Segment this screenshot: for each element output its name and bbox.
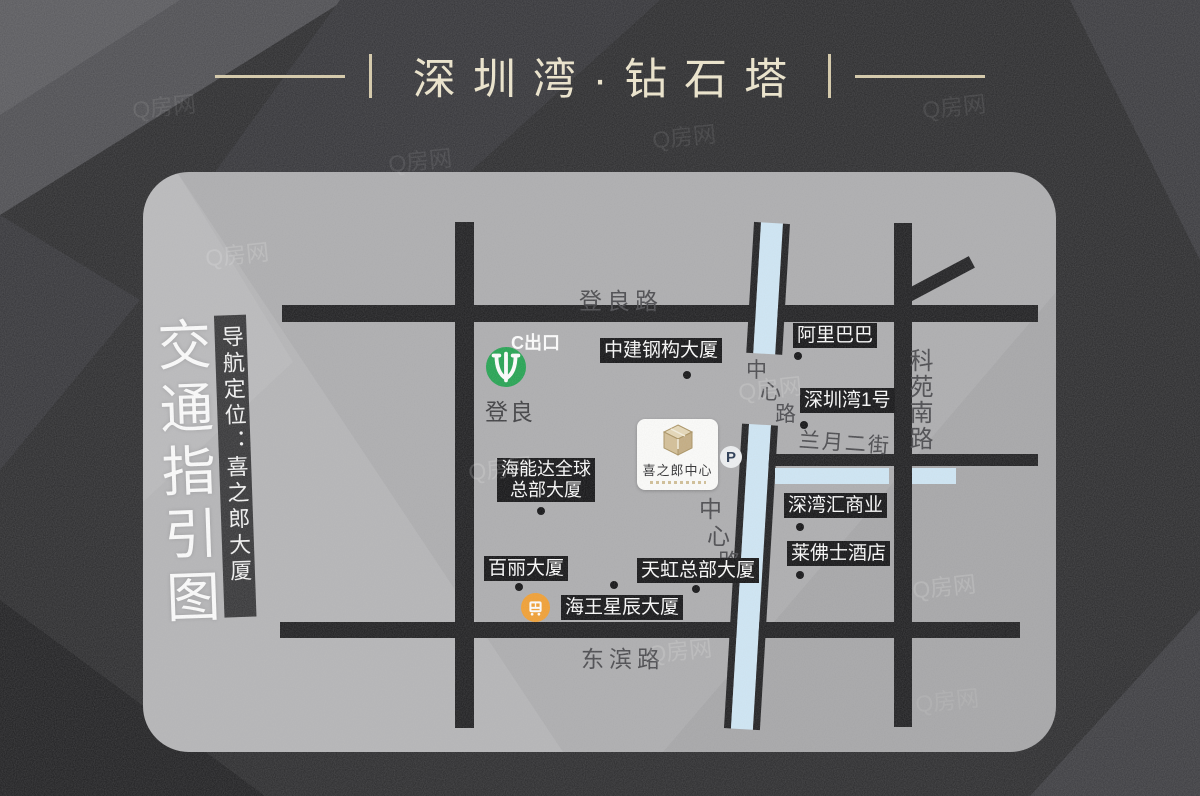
page-title: 深圳湾·钻石塔 — [396, 45, 804, 107]
map-sub-title: 导航定位：喜之郎大厦 — [214, 315, 257, 618]
title-left-bar — [369, 54, 372, 98]
landmark-laifushi: 莱佛士酒店 — [787, 541, 890, 566]
parking-icon: P — [720, 446, 742, 468]
landmark-haiwang: 海王星辰大厦 — [561, 595, 683, 620]
road-label-lanyue: 兰月二街 — [798, 424, 892, 460]
landmark-hainengda: 海能达全球 总部大厦 — [497, 458, 595, 502]
landmark-tianhong: 天虹总部大厦 — [637, 558, 759, 583]
left-title-block: 交通指引图 导航定位：喜之郎大厦 — [151, 315, 257, 633]
gold-cube-logo-icon — [658, 423, 698, 459]
dot-haiwang — [610, 581, 618, 589]
project-card: 喜之郎中心 — [637, 419, 718, 490]
road-label-keyuan-south: 科苑南路 — [901, 348, 936, 452]
watermark: Q房网 — [650, 115, 717, 155]
landmark-shenzhenwan1: 深圳湾1号 — [800, 388, 895, 413]
road-label-dongbin: 东滨路 — [581, 640, 665, 674]
title-right-bar — [828, 54, 831, 98]
dot-alibaba — [794, 352, 802, 360]
dot-zhongjian — [683, 371, 691, 379]
road-label-center-north: 中 心 路 — [746, 354, 806, 424]
dot-baili — [515, 583, 523, 591]
title-left-line — [215, 75, 345, 78]
poster-header: 深圳湾·钻石塔 — [0, 46, 1200, 106]
dot-shenzhenwan1 — [800, 421, 808, 429]
project-name: 喜之郎中心 — [642, 460, 712, 479]
dot-laifushi — [796, 571, 804, 579]
landmark-zhongjian: 中建钢构大厦 — [600, 338, 722, 363]
landmark-alibaba: 阿里巴巴 — [793, 323, 877, 348]
bus-icon — [521, 593, 550, 622]
road-center-north-segment — [746, 222, 790, 355]
landmark-shenwanhui: 深湾汇商业 — [784, 493, 887, 518]
dot-hainengda — [537, 507, 545, 515]
road-lanyue — [757, 454, 1038, 466]
map-card: 登良路 东滨路 兰月二街 科苑南路 中 心 路 中 心 路 C出口 登良 喜之郎… — [143, 172, 1056, 752]
metro-station-label: 登良 — [485, 393, 535, 427]
dot-shenwanhui — [796, 523, 804, 531]
road-blue-branch-west — [775, 468, 889, 484]
shenzhen-metro-icon — [485, 346, 527, 388]
map-main-title: 交通指引图 — [151, 316, 216, 633]
project-card-tagline-decor — [650, 481, 706, 484]
road-blue-branch-east — [912, 468, 956, 484]
landmark-baili: 百丽大厦 — [484, 556, 568, 581]
road-label-dengliang: 登良路 — [579, 282, 663, 316]
road-vertical-west — [455, 222, 474, 728]
dot-tianhong — [692, 585, 700, 593]
title-right-line — [855, 75, 985, 78]
